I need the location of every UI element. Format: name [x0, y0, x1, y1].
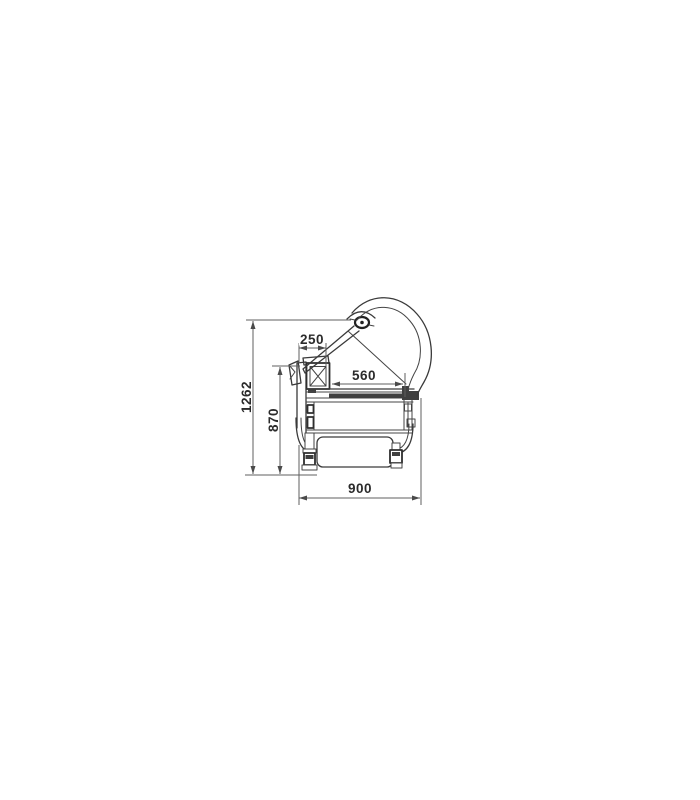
- back-bracket: [289, 361, 301, 385]
- technical-drawing-page: 1262 870 250 560: [0, 0, 700, 800]
- dim-top-width-label: 250: [300, 332, 324, 347]
- dim-deck-depth-label: 560: [352, 368, 376, 383]
- right-caster: [390, 443, 402, 468]
- cabinet-bottom: [306, 430, 413, 433]
- dim-body-height: 870: [266, 366, 300, 474]
- dim-overall-depth-label: 900: [348, 481, 372, 496]
- dim-overall-height-label: 1262: [239, 381, 254, 413]
- dim-body-height-label: 870: [266, 408, 281, 432]
- left-caster: [302, 433, 317, 470]
- base-compartment: [317, 437, 393, 467]
- dim-deck-depth: 560: [332, 368, 405, 397]
- left-hinge-block-lower: [308, 417, 314, 428]
- front-rail: [404, 398, 412, 430]
- display-case-side-view-drawing: 1262 870 250 560: [0, 0, 700, 800]
- hinge-pivot-pin: [360, 321, 364, 325]
- left-hinge-block-upper: [308, 405, 314, 413]
- deck-front-strip: [329, 394, 406, 399]
